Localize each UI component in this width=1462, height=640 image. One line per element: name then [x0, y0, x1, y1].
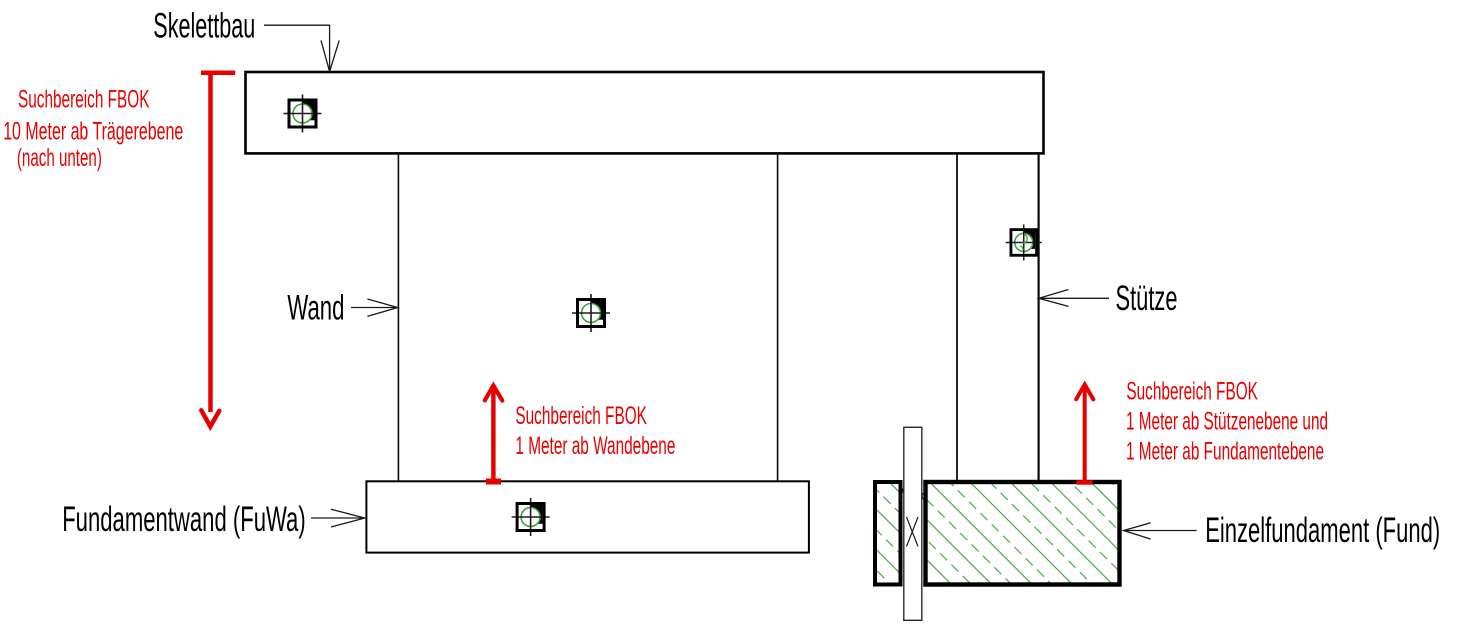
svg-text:Suchbereich FBOK: Suchbereich FBOK: [1126, 378, 1258, 406]
svg-text:1 Meter ab Stützenebene und: 1 Meter ab Stützenebene und: [1126, 408, 1328, 436]
svg-text:10 Meter ab Trägerebene: 10 Meter ab Trägerebene: [3, 117, 183, 145]
svg-text:(nach unten): (nach unten): [17, 144, 102, 172]
svg-text:1 Meter ab Wandebene: 1 Meter ab Wandebene: [515, 432, 675, 460]
svg-text:Skelettbau: Skelettbau: [153, 6, 255, 46]
svg-text:Suchbereich FBOK: Suchbereich FBOK: [18, 86, 150, 114]
svg-text:Wand: Wand: [287, 288, 344, 328]
svg-text:Suchbereich FBOK: Suchbereich FBOK: [515, 402, 647, 430]
svg-text:Stütze: Stütze: [1116, 278, 1178, 318]
svg-text:Fundamentwand (FuWa): Fundamentwand (FuWa): [62, 499, 305, 539]
svg-text:1 Meter ab Fundamentebene: 1 Meter ab Fundamentebene: [1126, 438, 1324, 466]
svg-text:Einzelfundament (Fund): Einzelfundament (Fund): [1205, 510, 1440, 550]
